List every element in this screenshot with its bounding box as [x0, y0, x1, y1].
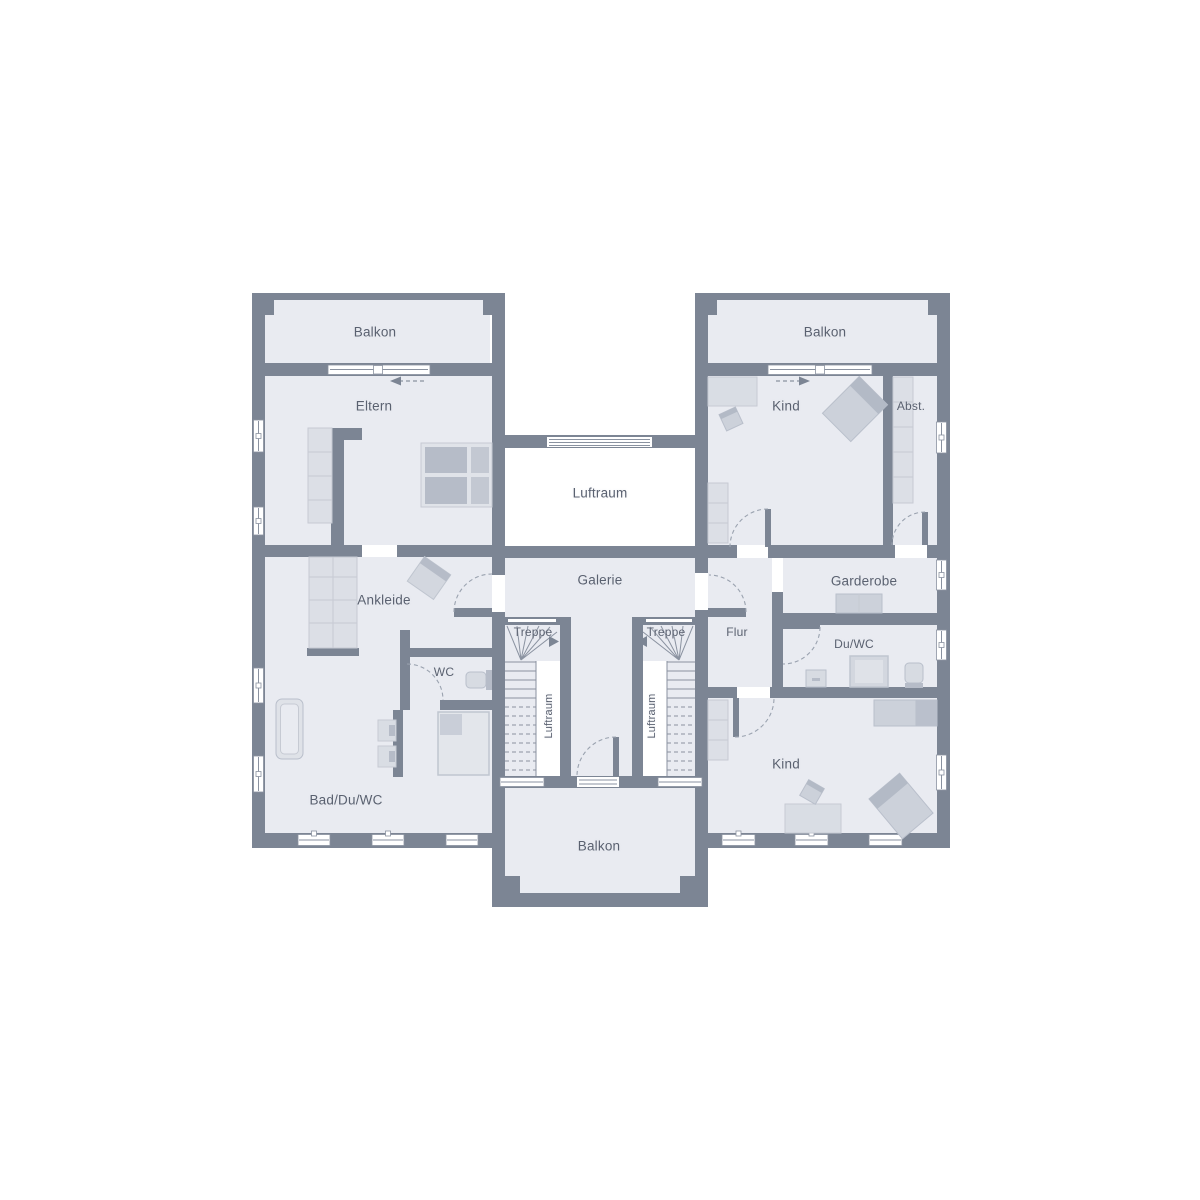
eltern-double-bed — [421, 443, 492, 507]
window — [937, 630, 947, 660]
room-label-garderobe: Garderobe — [831, 574, 897, 589]
abst-shelf — [893, 377, 913, 503]
door-leaf-kind-bottom — [733, 698, 739, 737]
wc-toilet — [466, 670, 492, 690]
door-leaf-abst — [922, 512, 928, 545]
room-label-balkon-top-left: Balkon — [354, 325, 396, 340]
room-label-balkon-top-right: Balkon — [804, 325, 846, 340]
door-leaf-duwc — [783, 622, 820, 629]
kind-bottom-shelf — [708, 700, 728, 760]
kind-top-shelf — [708, 483, 728, 543]
window — [869, 835, 902, 846]
floor-plan-drawing — [0, 0, 1200, 1200]
bathtub — [276, 699, 303, 759]
eltern-wardrobe — [308, 428, 332, 523]
kind-bottom-desk — [785, 804, 841, 833]
window — [937, 560, 947, 590]
room-label-luftraum-stair-left: Luftraum — [543, 693, 555, 738]
gallery-railing — [547, 437, 652, 447]
floor-plan: Balkon Balkon Eltern Kind Abst. Luftraum… — [0, 0, 1200, 1200]
window — [254, 507, 264, 535]
room-label-luftraum: Luftraum — [573, 486, 628, 501]
washbasin — [378, 746, 396, 767]
room-label-eltern: Eltern — [356, 399, 392, 414]
washbasin — [378, 720, 396, 741]
room-label-wc: WC — [434, 665, 454, 679]
room-label-abst: Abst. — [897, 399, 925, 413]
shower-bad — [438, 712, 489, 775]
room-label-bad-du-wc: Bad/Du/WC — [309, 793, 382, 808]
room-label-treppe-right: Treppe — [647, 625, 686, 639]
flur-floor — [708, 558, 772, 687]
kind-top-dresser — [708, 377, 757, 406]
duwc-toilet — [905, 663, 923, 688]
door-leaf-ankleide — [454, 608, 492, 617]
galerie-floor — [505, 558, 695, 617]
window — [254, 420, 264, 452]
room-label-kind-bottom: Kind — [772, 757, 800, 772]
duwc-sink — [806, 670, 826, 687]
duwc-shower — [850, 656, 888, 687]
room-label-ankleide: Ankleide — [357, 593, 410, 608]
room-label-treppe-left: Treppe — [514, 625, 553, 639]
window — [446, 835, 478, 846]
window — [254, 668, 264, 703]
balcony-door-threshold — [577, 777, 619, 787]
door-leaf-flur — [708, 608, 746, 617]
room-label-luftraum-stair-right: Luftraum — [646, 693, 658, 738]
window — [658, 778, 702, 787]
door-leaf-kind-top — [765, 509, 771, 547]
room-label-kind-top: Kind — [772, 399, 800, 414]
stair-corridor-floor — [571, 617, 632, 776]
kind-bottom-wardrobe — [874, 700, 937, 726]
door-leaf-balcony — [613, 737, 619, 776]
room-label-du-wc: Du/WC — [834, 637, 874, 651]
garderobe-cabinet — [836, 594, 882, 613]
window — [500, 778, 544, 787]
window — [937, 422, 947, 453]
ankleide-wardrobe — [309, 557, 357, 648]
window — [254, 756, 264, 792]
window — [937, 755, 947, 790]
room-label-flur: Flur — [726, 625, 747, 639]
room-label-galerie: Galerie — [578, 573, 623, 588]
room-label-balkon-bottom: Balkon — [578, 839, 620, 854]
